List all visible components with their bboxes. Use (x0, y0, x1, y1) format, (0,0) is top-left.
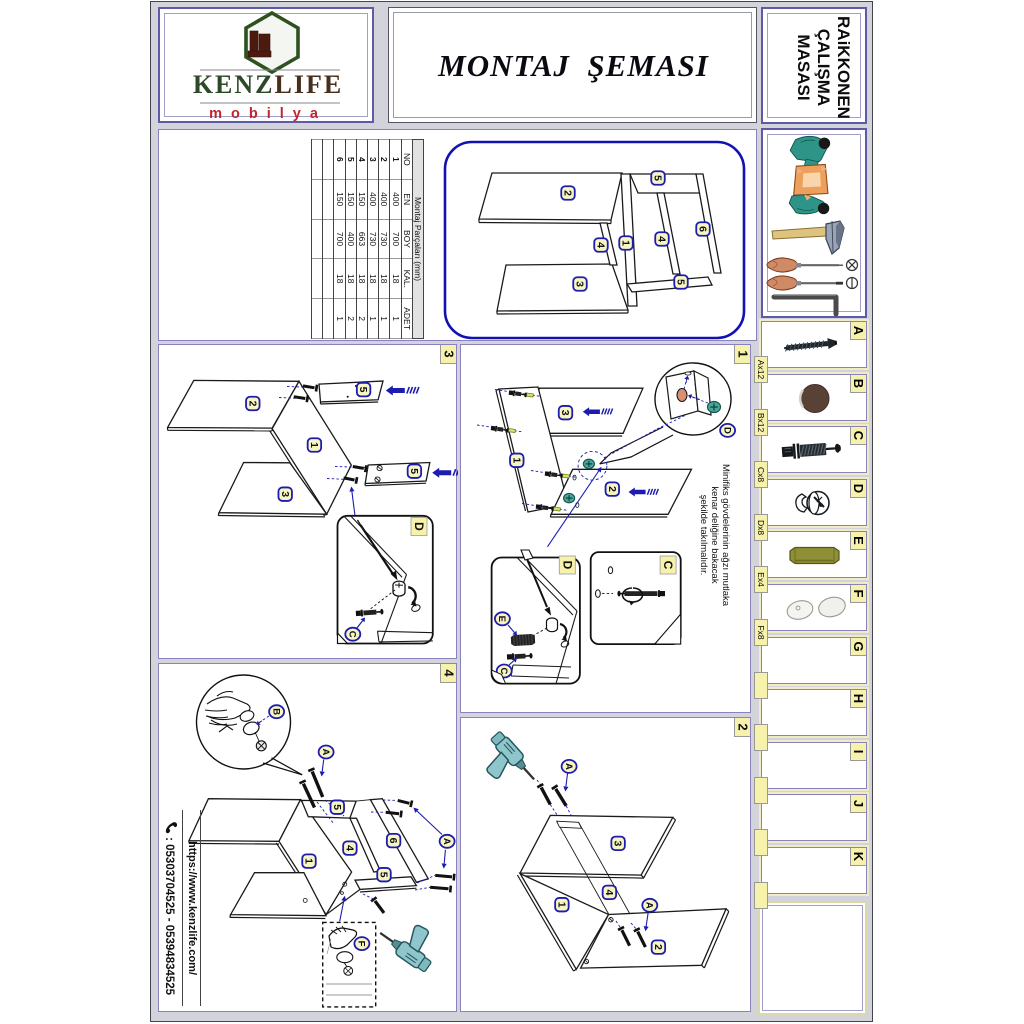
svg-text:3: 3 (612, 840, 624, 846)
svg-text:D: D (721, 427, 732, 434)
svg-text:5: 5 (675, 279, 687, 285)
svg-text:1: 1 (556, 902, 568, 908)
svg-text:3: 3 (559, 410, 571, 416)
svg-text:4: 4 (656, 236, 668, 242)
svg-text:3: 3 (574, 281, 586, 287)
svg-text:C: C (661, 561, 675, 570)
svg-text:1: 1 (620, 240, 632, 246)
svg-text:2: 2 (652, 944, 664, 950)
svg-text:E: E (496, 616, 507, 622)
svg-text:5: 5 (331, 804, 343, 810)
svg-text:1: 1 (510, 457, 522, 463)
svg-text:A: A (563, 763, 574, 770)
svg-text:C: C (347, 631, 358, 638)
svg-text:A: A (644, 902, 655, 909)
svg-text:5: 5 (408, 468, 420, 474)
svg-text:3: 3 (279, 491, 291, 497)
svg-text:1: 1 (308, 442, 320, 448)
svg-text:6: 6 (697, 226, 709, 232)
svg-text:2: 2 (246, 401, 258, 407)
svg-text:4: 4 (603, 889, 615, 895)
svg-text:1: 1 (303, 858, 315, 864)
svg-text:5: 5 (378, 872, 390, 878)
svg-text:5: 5 (357, 387, 369, 393)
svg-text:D: D (560, 561, 574, 570)
svg-text:2: 2 (606, 486, 618, 492)
svg-text:B: B (270, 708, 281, 715)
svg-text:A: A (320, 749, 331, 756)
svg-text:4: 4 (595, 242, 607, 248)
svg-text:4: 4 (344, 845, 356, 851)
svg-text:2: 2 (562, 190, 574, 196)
svg-text:A: A (441, 838, 452, 845)
svg-text:6: 6 (387, 838, 399, 844)
svg-text:F: F (356, 941, 367, 947)
svg-text:5: 5 (652, 175, 664, 181)
svg-text:D: D (412, 522, 426, 531)
